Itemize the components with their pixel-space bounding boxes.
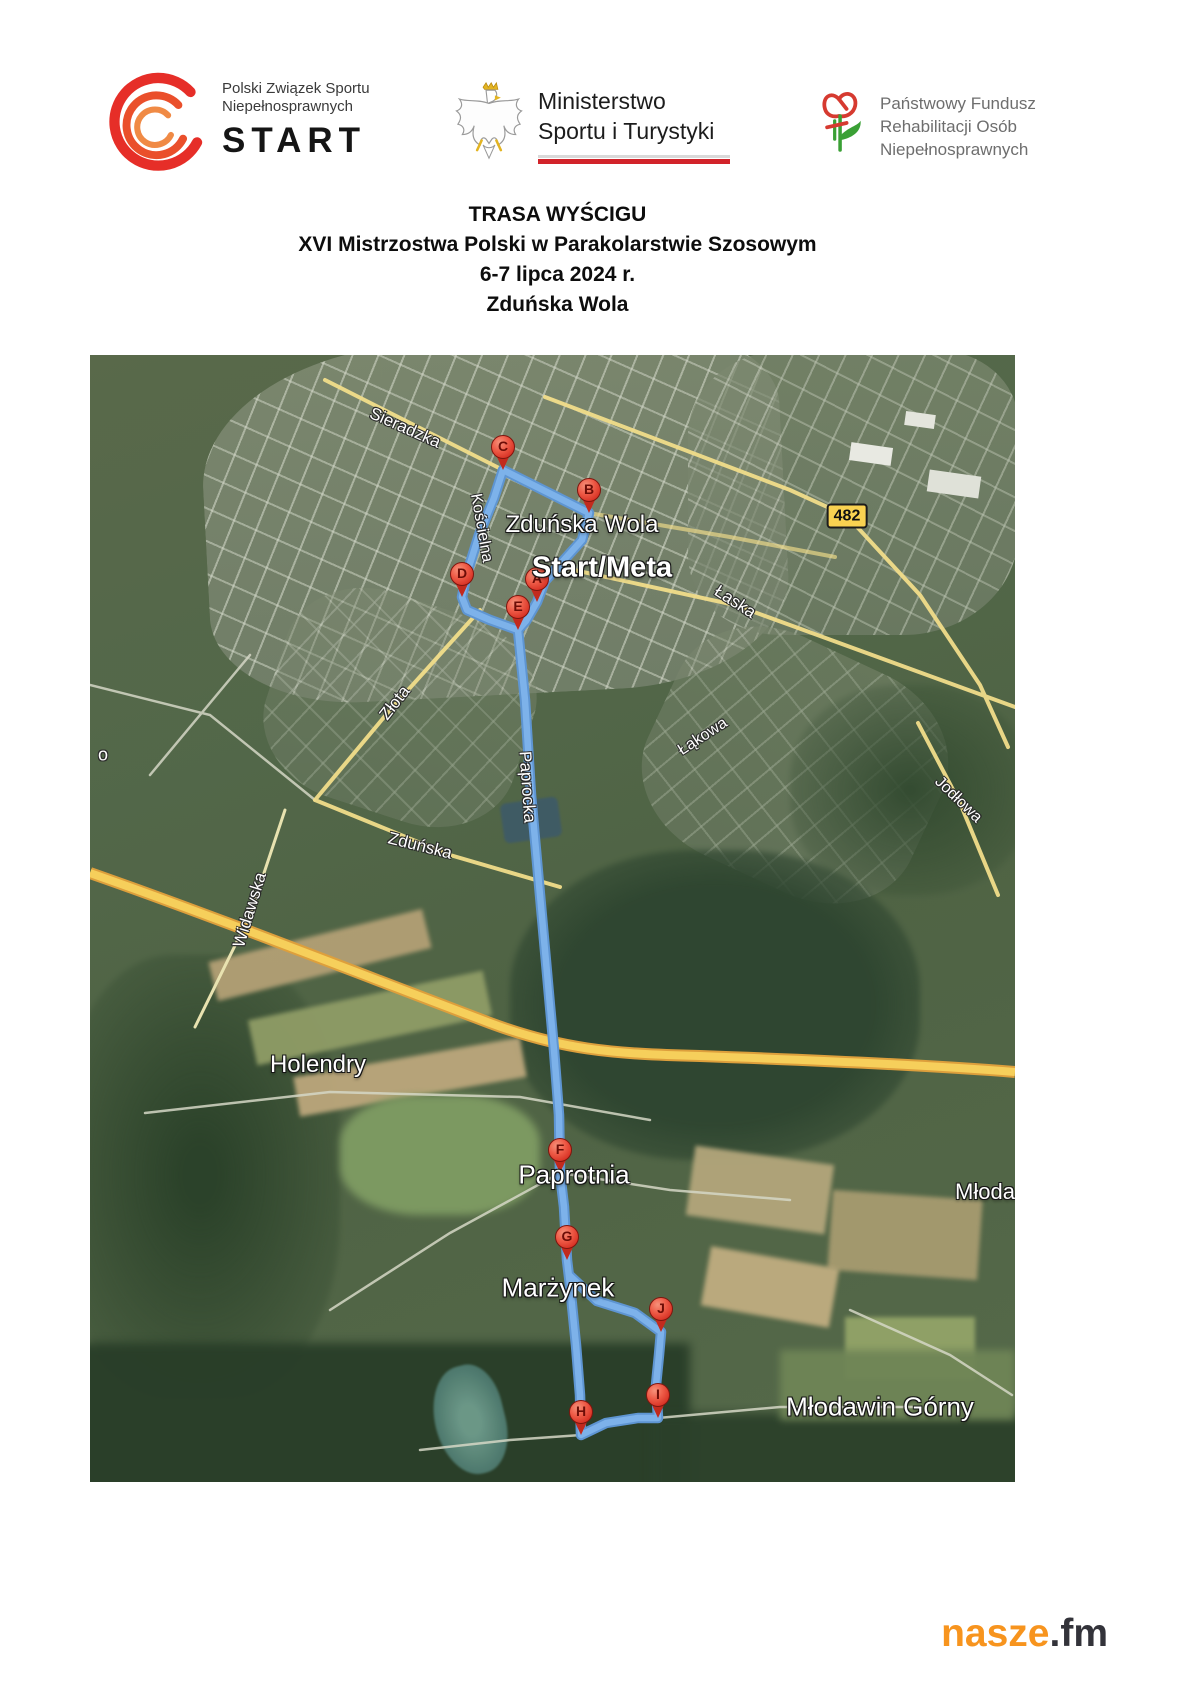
route-marker-E: E bbox=[505, 595, 531, 631]
place-label-zduńska-wola: Zduńska Wola bbox=[506, 511, 659, 539]
pfron-line3: Niepełnosprawnych bbox=[880, 138, 1036, 161]
start-logo: Polski Związek Sportu Niepełnosprawnych … bbox=[100, 64, 370, 176]
place-label-start-meta: Start/Meta bbox=[532, 552, 672, 585]
ministry-logo: Ministerstwo Sportu i Turystyki bbox=[452, 72, 730, 172]
route-marker-G: G bbox=[554, 1225, 580, 1261]
title-line1: TRASA WYŚCIGU bbox=[90, 200, 1025, 230]
street-label-o: o bbox=[98, 745, 108, 766]
marker-letter: H bbox=[569, 1403, 593, 1419]
polish-eagle-icon bbox=[452, 72, 526, 172]
route-marker-H: H bbox=[568, 1400, 594, 1436]
route-marker-C: C bbox=[490, 435, 516, 471]
pfron-tulip-icon bbox=[812, 70, 866, 170]
marker-letter: J bbox=[649, 1300, 673, 1316]
start-logo-line1: Polski Związek Sportu bbox=[222, 80, 370, 98]
ministry-flag-underline bbox=[538, 155, 730, 164]
pfron-line2: Rehabilitacji Osób bbox=[880, 115, 1036, 138]
route-marker-I: I bbox=[645, 1383, 671, 1419]
route-marker-J: J bbox=[648, 1297, 674, 1333]
place-label-marżynek: Marżynek bbox=[502, 1273, 615, 1304]
place-label-młodawin-górny: Młodawin Górny bbox=[786, 1392, 974, 1423]
ministry-line2: Sportu i Turystyki bbox=[538, 116, 730, 146]
route-marker-B: B bbox=[576, 478, 602, 514]
place-label-paprotnia: Paprotnia bbox=[518, 1160, 629, 1191]
nasze-fm-logo: nasze.fm bbox=[941, 1612, 1108, 1656]
race-route-satellite-map: ABCDEFGHIJSieradzkaKościelnaŁaskaZłotaŁą… bbox=[90, 355, 1015, 1482]
marker-letter: B bbox=[577, 481, 601, 497]
place-label-młoda: Młoda bbox=[955, 1179, 1015, 1205]
marker-letter: E bbox=[506, 598, 530, 614]
nasze-fm-logo-dark: .fm bbox=[1050, 1612, 1109, 1655]
marker-letter: F bbox=[548, 1141, 572, 1157]
start-crescent-icon bbox=[100, 64, 212, 176]
start-logo-line2: Niepełnosprawnych bbox=[222, 98, 370, 116]
marker-letter: I bbox=[646, 1386, 670, 1402]
marker-letter: G bbox=[555, 1228, 579, 1244]
pfron-line1: Państwowy Fundusz bbox=[880, 92, 1036, 115]
title-line4: Zduńska Wola bbox=[90, 290, 1025, 320]
route-marker-D: D bbox=[449, 562, 475, 598]
marker-letter: C bbox=[491, 438, 515, 454]
pfron-logo: Państwowy Fundusz Rehabilitacji Osób Nie… bbox=[812, 70, 1036, 170]
title-line3: 6-7 lipca 2024 r. bbox=[90, 260, 1025, 290]
marker-letter: D bbox=[450, 565, 474, 581]
start-logo-name: START bbox=[222, 121, 370, 161]
title-line2: XVI Mistrzostwa Polski w Parakolarstwie … bbox=[90, 230, 1025, 260]
page: Polski Związek Sportu Niepełnosprawnych … bbox=[0, 0, 1200, 1698]
ministry-line1: Ministerstwo bbox=[538, 86, 730, 116]
road-number-badge: 482 bbox=[827, 504, 868, 529]
document-title-block: TRASA WYŚCIGU XVI Mistrzostwa Polski w P… bbox=[90, 200, 1025, 320]
place-label-holendry: Holendry bbox=[270, 1051, 366, 1079]
nasze-fm-logo-orange: nasze bbox=[941, 1612, 1049, 1655]
